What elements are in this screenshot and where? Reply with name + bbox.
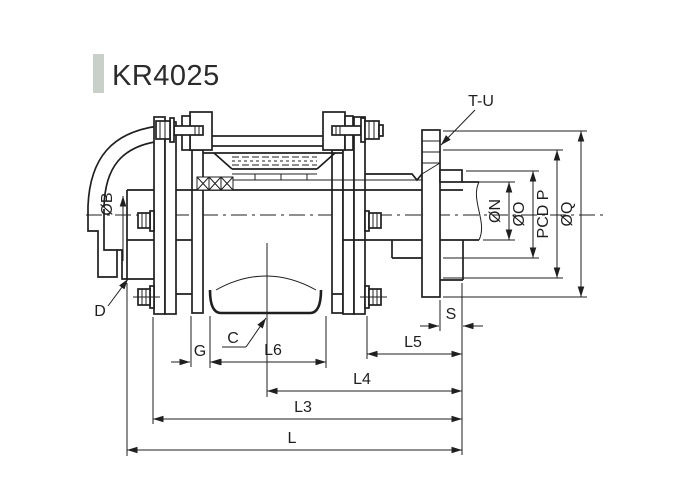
- shaft-break-line: [476, 182, 481, 240]
- top-bolt-right: [323, 112, 383, 150]
- sleeve-callout-label: C: [227, 330, 239, 347]
- dim-label-bore: ØB: [99, 192, 116, 215]
- dim-label-g: G: [194, 343, 206, 360]
- dim-label-l6: L6: [264, 342, 282, 359]
- dim-label-l3: L3: [294, 399, 312, 416]
- bolt-head: [156, 121, 170, 139]
- title-block: KR4025: [93, 54, 220, 93]
- coupling-technical-drawing: KR4025: [0, 0, 700, 500]
- accent-bar: [93, 54, 104, 93]
- thread-leader: [441, 110, 475, 145]
- bolt-head: [365, 121, 379, 139]
- dim-label-pcd: PCD P: [535, 190, 552, 239]
- page-title: KR4025: [112, 60, 220, 92]
- dim-label-n: ØN: [487, 199, 504, 223]
- dim-label-o: ØO: [511, 202, 528, 227]
- thread-callout-label: T-U: [468, 93, 494, 110]
- dim-label-s: S: [446, 306, 457, 323]
- housing-callout-label: D: [94, 303, 106, 320]
- right-hub: [365, 130, 482, 297]
- dim-label-q: ØQ: [559, 202, 576, 227]
- flange: [422, 130, 440, 297]
- seal-section-symbol: [197, 177, 233, 190]
- left-flange-plates: [154, 117, 176, 314]
- dim-label-l4: L4: [353, 371, 371, 388]
- gear-arc: [216, 276, 316, 290]
- dim-label-l: L: [288, 430, 297, 447]
- housing-leader: [108, 279, 128, 306]
- dim-label-l5: L5: [404, 334, 422, 351]
